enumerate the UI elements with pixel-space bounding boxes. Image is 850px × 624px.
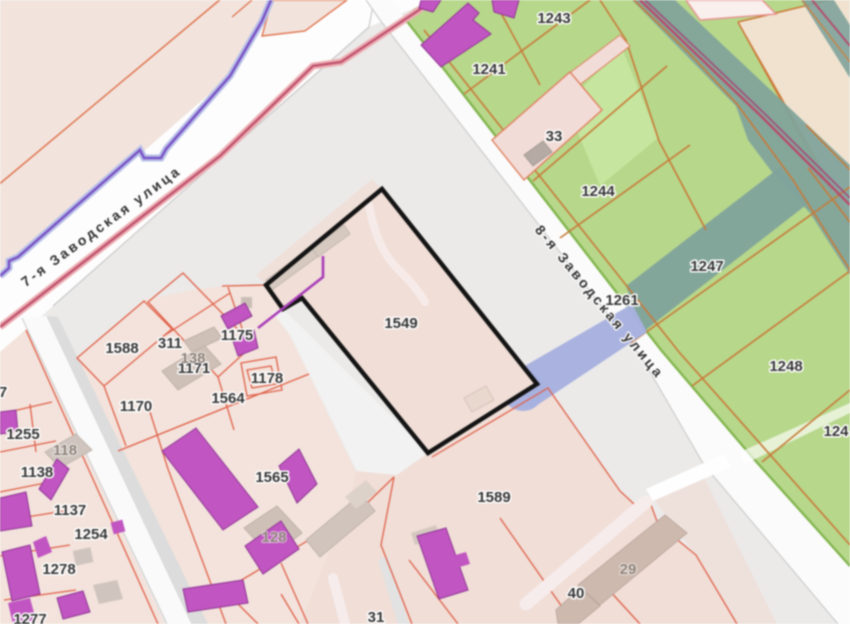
svg-text:118: 118 (53, 442, 77, 459)
svg-text:1565: 1565 (255, 469, 288, 486)
svg-text:29: 29 (620, 561, 637, 578)
svg-text:1278: 1278 (42, 561, 75, 578)
svg-text:1588: 1588 (105, 340, 138, 357)
svg-text:1589: 1589 (477, 489, 510, 506)
svg-text:1137: 1137 (54, 502, 87, 519)
svg-text:1564: 1564 (211, 390, 245, 407)
svg-text:1255: 1255 (6, 426, 39, 443)
svg-text:7: 7 (0, 384, 7, 401)
svg-text:1261: 1261 (605, 292, 638, 309)
svg-text:1247: 1247 (690, 258, 723, 275)
svg-text:311: 311 (158, 335, 182, 352)
svg-text:1175: 1175 (221, 327, 254, 344)
svg-text:1241: 1241 (472, 61, 505, 78)
svg-text:31: 31 (368, 609, 385, 624)
svg-text:1549: 1549 (384, 315, 417, 332)
svg-text:1248: 1248 (769, 358, 802, 375)
svg-text:128: 128 (261, 529, 286, 546)
svg-text:1244: 1244 (581, 183, 615, 200)
svg-text:1243: 1243 (537, 10, 570, 27)
svg-text:1138: 1138 (21, 464, 54, 481)
svg-text:1277: 1277 (13, 611, 46, 624)
svg-text:1170: 1170 (120, 398, 153, 415)
svg-text:1254: 1254 (74, 526, 108, 543)
svg-text:1178: 1178 (251, 370, 284, 387)
svg-text:40: 40 (568, 585, 585, 602)
svg-text:33: 33 (546, 128, 563, 145)
svg-text:124: 124 (823, 423, 849, 440)
svg-text:138: 138 (180, 350, 205, 367)
